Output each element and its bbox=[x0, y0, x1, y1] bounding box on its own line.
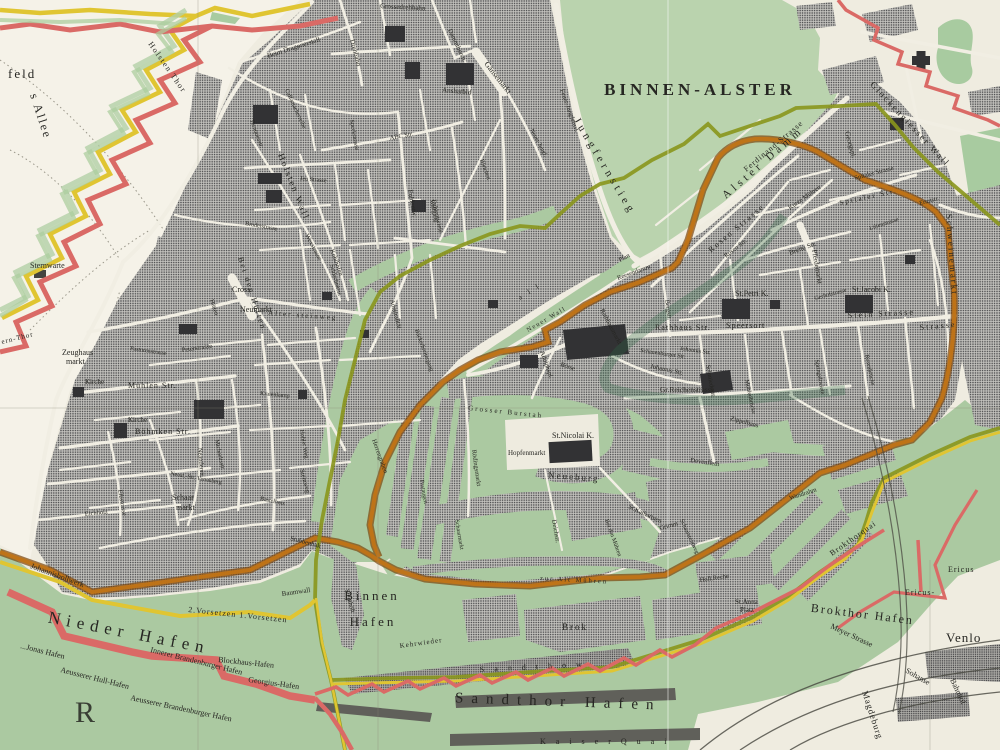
svg-text:K a i s e r Q u a i: K a i s e r Q u a i bbox=[540, 737, 670, 746]
svg-text:St.Petri K.: St.Petri K. bbox=[735, 289, 769, 298]
svg-text:markt: markt bbox=[176, 503, 195, 512]
svg-text:BINNEN-ALSTER: BINNEN-ALSTER bbox=[604, 80, 796, 99]
svg-text:Kirche: Kirche bbox=[128, 416, 147, 424]
svg-text:Gr.Reichenstrasse: Gr.Reichenstrasse bbox=[660, 385, 715, 394]
svg-text:St.Jacobi K.: St.Jacobi K. bbox=[852, 285, 891, 294]
svg-text:Ericus: Ericus bbox=[948, 565, 974, 574]
svg-text:markt: markt bbox=[66, 357, 85, 366]
svg-text:Venlo: Venlo bbox=[946, 630, 981, 645]
svg-text:Sternwarte: Sternwarte bbox=[30, 261, 65, 270]
svg-text:St.Anna: St.Anna bbox=[735, 598, 759, 606]
svg-text:Mühlen Str.: Mühlen Str. bbox=[128, 381, 177, 390]
svg-text:Böhmken Str.: Böhmken Str. bbox=[135, 427, 191, 436]
svg-text:feld: feld bbox=[8, 66, 36, 81]
svg-text:Kirche: Kirche bbox=[85, 378, 104, 386]
svg-text:Hafen: Hafen bbox=[350, 614, 397, 629]
svg-text:R: R bbox=[75, 696, 95, 729]
svg-text:Brok: Brok bbox=[562, 622, 588, 632]
svg-text:Zeughaus: Zeughaus bbox=[62, 348, 93, 357]
svg-text:Platz: Platz bbox=[740, 606, 754, 614]
svg-text:Rathhaus Str.: Rathhaus Str. bbox=[655, 323, 711, 332]
svg-text:Hopfenmarkt: Hopfenmarkt bbox=[508, 449, 545, 457]
svg-text:St.Nicolai K.: St.Nicolai K. bbox=[552, 431, 594, 440]
svg-text:Ericus-: Ericus- bbox=[905, 588, 935, 597]
svg-text:Speersort: Speersort bbox=[726, 321, 765, 330]
svg-text:Schaar: Schaar bbox=[172, 493, 194, 502]
